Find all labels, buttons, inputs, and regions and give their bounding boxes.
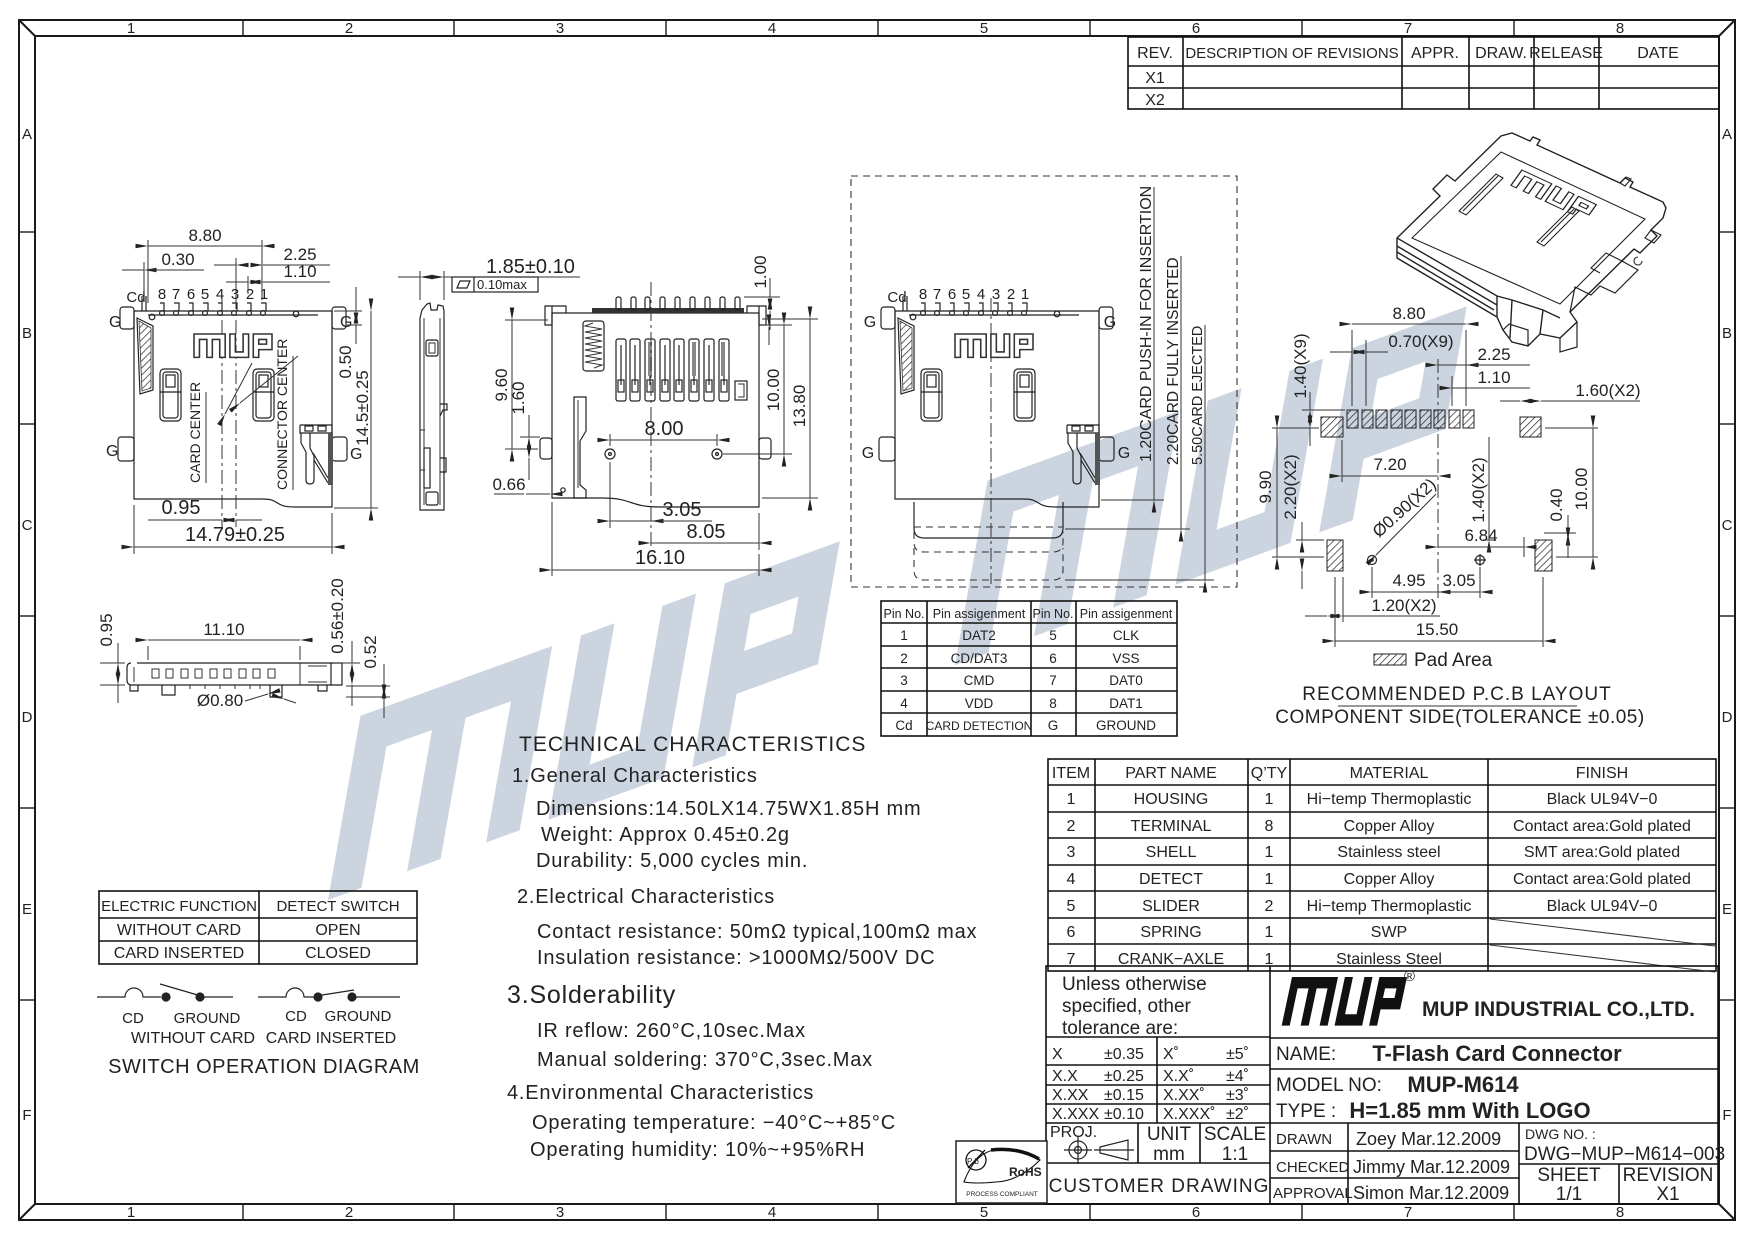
svg-text:Black UL94V−0: Black UL94V−0 (1547, 898, 1658, 915)
svg-text:4: 4 (900, 696, 908, 711)
svg-text:X1: X1 (1145, 70, 1165, 87)
svg-text:0.52: 0.52 (361, 635, 380, 668)
svg-text:CONNECTOR CENTER: CONNECTOR CENTER (274, 339, 290, 490)
svg-text:SMT area:Gold plated: SMT area:Gold plated (1524, 844, 1680, 861)
svg-text:±0.15: ±0.15 (1104, 1087, 1144, 1104)
svg-text:7.20: 7.20 (1373, 455, 1406, 474)
svg-text:Hi−temp Thermoplastic: Hi−temp Thermoplastic (1307, 791, 1472, 808)
svg-text:7: 7 (1404, 20, 1412, 37)
svg-text:Dimensions:14.50LX14.75WX1.85H: Dimensions:14.50LX14.75WX1.85H mm (536, 798, 921, 820)
svg-text:WITHOUT CARD: WITHOUT CARD (117, 922, 241, 939)
svg-text:OPEN: OPEN (315, 922, 360, 939)
svg-text:1: 1 (1265, 844, 1274, 861)
svg-text:3: 3 (556, 20, 564, 37)
svg-text:4: 4 (768, 1204, 776, 1221)
svg-text:X: X (1052, 1046, 1063, 1063)
svg-text:Copper Alloy: Copper Alloy (1344, 871, 1435, 888)
svg-text:PROCESS COMPLIANT: PROCESS COMPLIANT (966, 1191, 1038, 1198)
svg-text:GROUND: GROUND (174, 1010, 241, 1027)
svg-text:SWITCH OPERATION DIAGRAM: SWITCH OPERATION DIAGRAM (108, 1056, 420, 1078)
svg-text:DAT0: DAT0 (1109, 673, 1143, 688)
svg-text:8.80: 8.80 (188, 226, 221, 245)
svg-text:8: 8 (1616, 1204, 1624, 1221)
svg-text:C: C (1722, 517, 1733, 534)
svg-text:7: 7 (933, 286, 941, 303)
svg-text:1: 1 (1067, 791, 1076, 808)
svg-text:1: 1 (127, 20, 135, 37)
svg-text:Stainless steel: Stainless steel (1337, 844, 1440, 861)
svg-text:15.50: 15.50 (1416, 620, 1459, 639)
svg-text:COMPONENT SIDE(TOLERANCE ±0.: COMPONENT SIDE(TOLERANCE ±0.05) (1275, 707, 1644, 728)
svg-text:G: G (340, 314, 352, 331)
svg-text:3: 3 (1067, 844, 1076, 861)
svg-text:13.80: 13.80 (790, 385, 809, 428)
svg-text:14.79±0.25: 14.79±0.25 (185, 524, 285, 546)
svg-text:PART NAME: PART NAME (1125, 765, 1217, 782)
svg-text:®: ® (1404, 968, 1415, 985)
svg-text:3.Solderability: 3.Solderability (507, 981, 676, 1009)
svg-text:DETECT: DETECT (1139, 871, 1203, 888)
svg-text:G: G (862, 445, 874, 462)
svg-text:2: 2 (1067, 818, 1076, 835)
svg-text:6: 6 (187, 286, 195, 303)
svg-text:2.Electrical Characteristics: 2.Electrical Characteristics (517, 886, 775, 908)
svg-text:WITHOUT CARD: WITHOUT CARD (131, 1030, 255, 1047)
svg-text:X2: X2 (1145, 92, 1165, 109)
svg-text:4: 4 (216, 286, 224, 303)
svg-text:DRAWN: DRAWN (1276, 1131, 1332, 1148)
svg-text:mm: mm (1153, 1144, 1185, 1165)
svg-text:MUP INDUSTRIAL CO.,LTD.: MUP INDUSTRIAL CO.,LTD. (1422, 998, 1695, 1021)
svg-text:Cd: Cd (895, 718, 912, 733)
svg-text:Pin No.: Pin No. (1033, 607, 1074, 621)
svg-text:2: 2 (345, 1204, 353, 1221)
svg-text:DWG NO. :: DWG NO. : (1525, 1126, 1596, 1142)
svg-text:Cd: Cd (126, 289, 145, 306)
svg-text:5: 5 (1067, 898, 1076, 915)
svg-text:X.X˚: X.X˚ (1163, 1068, 1194, 1085)
svg-text:X.XX˚: X.XX˚ (1163, 1087, 1205, 1104)
svg-text:7: 7 (172, 286, 180, 303)
svg-text:Pin assigenment: Pin assigenment (1080, 607, 1173, 621)
svg-text:CUSTOMER DRAWING: CUSTOMER DRAWING (1049, 1176, 1270, 1197)
svg-text:CD: CD (122, 1010, 144, 1027)
svg-text:0.56±0.20: 0.56±0.20 (328, 578, 347, 654)
svg-text:8: 8 (158, 286, 166, 303)
svg-text:P b: P b (967, 1157, 979, 1166)
svg-text:X.XX: X.XX (1052, 1087, 1089, 1104)
svg-text:4.Environmental Characteristi: 4.Environmental Characteristics (507, 1082, 814, 1104)
svg-text:4.95: 4.95 (1392, 571, 1425, 590)
svg-text:CHECKED: CHECKED (1276, 1159, 1350, 1176)
svg-text:X˚: X˚ (1163, 1046, 1179, 1063)
svg-text:6: 6 (1049, 651, 1057, 666)
svg-text:2: 2 (900, 651, 908, 666)
svg-text:Q’TY: Q’TY (1251, 765, 1288, 782)
svg-text:1.40(X2): 1.40(X2) (1469, 457, 1488, 522)
svg-text:NAME:: NAME: (1276, 1044, 1336, 1065)
svg-text:tolerance are:: tolerance are: (1062, 1018, 1178, 1039)
svg-text:B: B (22, 325, 32, 342)
svg-text:DWG−MUP−M614−003: DWG−MUP−M614−003 (1524, 1144, 1725, 1165)
svg-text:±0.10: ±0.10 (1104, 1106, 1144, 1123)
svg-text:7: 7 (1049, 673, 1057, 688)
svg-text:IR reflow: 260°C,10sec.Max: IR reflow: 260°C,10sec.Max (537, 1020, 806, 1042)
svg-text:2: 2 (1265, 898, 1274, 915)
svg-text:B: B (1722, 325, 1732, 342)
svg-text:DATE: DATE (1637, 45, 1678, 62)
svg-text:ELECTRIC FUNCTION: ELECTRIC FUNCTION (101, 898, 257, 915)
svg-text:REV.: REV. (1137, 45, 1173, 62)
svg-text:6: 6 (1192, 20, 1200, 37)
svg-text:CARD DETECTION: CARD DETECTION (926, 719, 1033, 733)
svg-text:0.95: 0.95 (97, 613, 116, 646)
svg-text:X.XXX˚: X.XXX˚ (1163, 1106, 1215, 1123)
svg-text:CMD: CMD (964, 673, 995, 688)
svg-text:C: C (22, 517, 33, 534)
svg-text:14.5±0.25: 14.5±0.25 (353, 370, 372, 446)
svg-text:SHELL: SHELL (1146, 844, 1197, 861)
svg-text:5: 5 (980, 20, 988, 37)
svg-text:±0.35: ±0.35 (1104, 1046, 1144, 1063)
svg-text:1: 1 (1265, 871, 1274, 888)
svg-text:5: 5 (201, 286, 209, 303)
svg-text:10.00: 10.00 (1572, 468, 1591, 511)
svg-text:2.20CARD FULLY INSERTED: 2.20CARD FULLY INSERTED (1165, 257, 1182, 465)
svg-text:SHEET: SHEET (1537, 1165, 1601, 1186)
svg-text:SCALE: SCALE (1204, 1124, 1266, 1145)
svg-text:1/1: 1/1 (1556, 1184, 1582, 1205)
svg-text:Pin No.: Pin No. (884, 607, 925, 621)
svg-text:0.10max: 0.10max (477, 277, 527, 292)
svg-text:HOUSING: HOUSING (1134, 791, 1209, 808)
svg-text:RoHS: RoHS (1009, 1165, 1042, 1179)
svg-text:H=1.85 mm With LOGO: H=1.85 mm With LOGO (1349, 1098, 1590, 1123)
svg-text:1.00: 1.00 (751, 255, 770, 288)
svg-text:REVISION: REVISION (1623, 1165, 1714, 1186)
svg-text:16.10: 16.10 (635, 547, 685, 569)
svg-text:1.40(X9): 1.40(X9) (1291, 333, 1310, 398)
svg-text:Contact area:Gold plated: Contact area:Gold plated (1513, 871, 1691, 888)
svg-text:11.10: 11.10 (203, 620, 244, 639)
svg-text:Operating humidity: 10%~+95%R: Operating humidity: 10%~+95%RH (530, 1139, 865, 1161)
svg-text:CLK: CLK (1113, 628, 1139, 643)
svg-text:A: A (22, 126, 32, 143)
svg-text:0.66: 0.66 (492, 475, 525, 494)
svg-text:MATERIAL: MATERIAL (1350, 765, 1429, 782)
svg-text:5: 5 (1049, 628, 1057, 643)
svg-text:0.95: 0.95 (162, 497, 201, 519)
svg-text:8.00: 8.00 (645, 418, 684, 440)
svg-text:CLOSED: CLOSED (305, 945, 371, 962)
svg-text:FINISH: FINISH (1576, 765, 1628, 782)
svg-text:Insulation resistance: >1000M: Insulation resistance: >1000MΩ/500V DC (537, 947, 935, 969)
svg-text:6: 6 (1067, 924, 1076, 941)
svg-text:TERMINAL: TERMINAL (1131, 818, 1212, 835)
svg-text:2: 2 (345, 20, 353, 37)
svg-text:G: G (109, 314, 121, 331)
svg-text:1: 1 (900, 628, 908, 643)
svg-text:1.10: 1.10 (283, 262, 316, 281)
svg-text:Copper Alloy: Copper Alloy (1344, 818, 1435, 835)
svg-text:1.20(X2): 1.20(X2) (1371, 596, 1436, 615)
svg-text:2.25: 2.25 (1477, 345, 1510, 364)
svg-text:0.40: 0.40 (1547, 488, 1566, 521)
svg-text:CD/DAT3: CD/DAT3 (951, 651, 1008, 666)
svg-text:3: 3 (992, 286, 1000, 303)
svg-text:G: G (864, 314, 876, 331)
svg-text:Pin assigenment: Pin assigenment (933, 607, 1026, 621)
svg-text:G: G (1048, 718, 1059, 733)
svg-text:Contact resistance: 50mΩ typ: Contact resistance: 50mΩ typical,100mΩ m… (537, 921, 977, 943)
svg-text:5: 5 (962, 286, 970, 303)
svg-text:G: G (350, 446, 362, 463)
svg-text:TYPE :: TYPE : (1276, 1101, 1336, 1122)
svg-text:1.10: 1.10 (1477, 368, 1510, 387)
svg-text:SWP: SWP (1371, 924, 1407, 941)
svg-text:3: 3 (556, 1204, 564, 1221)
svg-text:2: 2 (246, 286, 254, 303)
svg-text:1.60(X2): 1.60(X2) (1575, 381, 1640, 400)
svg-text:APPR.: APPR. (1411, 45, 1459, 62)
svg-text:±4˚: ±4˚ (1226, 1068, 1249, 1085)
svg-text:SLIDER: SLIDER (1142, 898, 1200, 915)
svg-text:6: 6 (1192, 1204, 1200, 1221)
svg-text:8: 8 (1265, 818, 1274, 835)
svg-text:G: G (1118, 445, 1130, 462)
svg-text:Weight: Approx 0.45±0.2g: Weight: Approx 0.45±0.2g (541, 824, 790, 846)
svg-text:RELEASE: RELEASE (1529, 45, 1603, 62)
svg-text:E: E (22, 901, 32, 918)
svg-text:Operating temperature: −40°C~: Operating temperature: −40°C~+85°C (532, 1112, 896, 1134)
svg-text:DRAW.: DRAW. (1475, 45, 1527, 62)
svg-text:X1: X1 (1656, 1184, 1679, 1205)
svg-text:8: 8 (1616, 20, 1624, 37)
svg-text:CARD CENTER: CARD CENTER (187, 382, 203, 483)
svg-text:TECHNICAL CHARACTERISTICS: TECHNICAL CHARACTERISTICS (519, 733, 866, 756)
svg-text:1.85±0.10: 1.85±0.10 (486, 256, 575, 278)
svg-text:3: 3 (900, 673, 908, 688)
svg-text:4: 4 (768, 20, 776, 37)
svg-text:RECOMMENDED P.C.B LAYOUT: RECOMMENDED P.C.B LAYOUT (1302, 684, 1611, 705)
svg-text:8.05: 8.05 (687, 521, 726, 543)
svg-text:1: 1 (1021, 286, 1029, 303)
svg-text:±2˚: ±2˚ (1226, 1106, 1249, 1123)
svg-text:9.90: 9.90 (1256, 470, 1275, 503)
svg-text:8.80: 8.80 (1392, 304, 1425, 323)
svg-text:Jimmy Mar.12.2009: Jimmy Mar.12.2009 (1353, 1157, 1510, 1177)
svg-text:DETECT SWITCH: DETECT SWITCH (276, 898, 399, 915)
svg-text:E: E (1722, 901, 1732, 918)
svg-text:A: A (1722, 126, 1732, 143)
svg-text:1: 1 (127, 1204, 135, 1221)
svg-text:1.General Characteristics: 1.General Characteristics (512, 765, 758, 787)
svg-text:6: 6 (948, 286, 956, 303)
svg-text:Hi−temp Thermoplastic: Hi−temp Thermoplastic (1307, 898, 1472, 915)
svg-text:3.05: 3.05 (663, 499, 702, 521)
svg-text:1.60: 1.60 (509, 381, 528, 414)
svg-text:CARD INSERTED: CARD INSERTED (114, 945, 244, 962)
svg-text:F: F (1722, 1107, 1731, 1124)
svg-text:8: 8 (1049, 696, 1057, 711)
svg-text:GROUND: GROUND (1096, 718, 1156, 733)
svg-text:±0.25: ±0.25 (1104, 1068, 1144, 1085)
svg-text:X.XXX: X.XXX (1052, 1106, 1099, 1123)
svg-text:APPROVAL: APPROVAL (1273, 1185, 1353, 1202)
svg-text:G: G (1104, 314, 1116, 331)
svg-text:UNIT: UNIT (1147, 1124, 1192, 1145)
svg-text:1:1: 1:1 (1222, 1144, 1248, 1165)
svg-text:2.20(X2): 2.20(X2) (1281, 454, 1300, 519)
svg-text:MUP-M614: MUP-M614 (1407, 1072, 1519, 1097)
svg-text:6.84: 6.84 (1464, 526, 1497, 545)
svg-text:VDD: VDD (965, 696, 994, 711)
svg-text:DESCRIPTION OF REVISIONS: DESCRIPTION OF REVISIONS (1185, 45, 1398, 62)
svg-text:PROJ.: PROJ. (1050, 1124, 1097, 1141)
svg-text:1: 1 (260, 286, 268, 303)
svg-text:X.X: X.X (1052, 1068, 1078, 1085)
svg-text:Unless otherwise: Unless otherwise (1062, 974, 1207, 995)
svg-text:GROUND: GROUND (325, 1008, 392, 1025)
svg-text:Ø0.80: Ø0.80 (197, 691, 243, 710)
svg-text:1.20CARD PUSH-IN FOR INSERTION: 1.20CARD PUSH-IN FOR INSERTION (1138, 186, 1155, 462)
svg-text:Contact area:Gold plated: Contact area:Gold plated (1513, 818, 1691, 835)
svg-text:0.30: 0.30 (161, 250, 194, 269)
svg-text:3: 3 (231, 286, 239, 303)
svg-text:4: 4 (1067, 871, 1076, 888)
svg-text:2: 2 (1007, 286, 1015, 303)
svg-text:Black UL94V−0: Black UL94V−0 (1547, 791, 1658, 808)
svg-text:0.70(X9): 0.70(X9) (1388, 332, 1453, 351)
svg-text:T-Flash Card Connector: T-Flash Card Connector (1372, 1041, 1622, 1066)
svg-text:Cd: Cd (887, 289, 906, 306)
svg-text:specified, other: specified, other (1062, 996, 1192, 1017)
svg-text:VSS: VSS (1112, 651, 1139, 666)
svg-text:Pad Area: Pad Area (1414, 650, 1493, 671)
svg-text:1: 1 (1265, 924, 1274, 941)
svg-text:SPRING: SPRING (1140, 924, 1201, 941)
svg-text:MODEL NO:: MODEL NO: (1276, 1075, 1382, 1096)
svg-text:7: 7 (1404, 1204, 1412, 1221)
svg-text:5.50CARD EJECTED: 5.50CARD EJECTED (1190, 326, 1206, 465)
svg-text:±3˚: ±3˚ (1226, 1087, 1249, 1104)
svg-text:F: F (22, 1107, 31, 1124)
svg-text:3.05: 3.05 (1442, 571, 1475, 590)
svg-text:±5˚: ±5˚ (1226, 1046, 1249, 1063)
svg-text:CARD INSERTED: CARD INSERTED (266, 1030, 396, 1047)
svg-text:Zoey Mar.12.2009: Zoey Mar.12.2009 (1356, 1129, 1501, 1149)
svg-text:ITEM: ITEM (1052, 765, 1090, 782)
svg-text:10.00: 10.00 (764, 369, 783, 412)
svg-text:CD: CD (285, 1008, 307, 1025)
svg-text:Manual soldering: 370°C,3sec.: Manual soldering: 370°C,3sec.Max (537, 1049, 873, 1071)
svg-text:8: 8 (919, 286, 927, 303)
svg-text:1: 1 (1265, 791, 1274, 808)
svg-text:D: D (1722, 709, 1733, 726)
svg-text:5: 5 (980, 1204, 988, 1221)
svg-text:Durability: 5,000 cycles min: Durability: 5,000 cycles min. (536, 850, 808, 872)
svg-text:DAT2: DAT2 (962, 628, 996, 643)
svg-text:G: G (106, 443, 118, 460)
svg-text:4: 4 (977, 286, 985, 303)
svg-text:DAT1: DAT1 (1109, 696, 1143, 711)
svg-text:Simon Mar.12.2009: Simon Mar.12.2009 (1353, 1183, 1509, 1203)
svg-text:D: D (22, 709, 33, 726)
